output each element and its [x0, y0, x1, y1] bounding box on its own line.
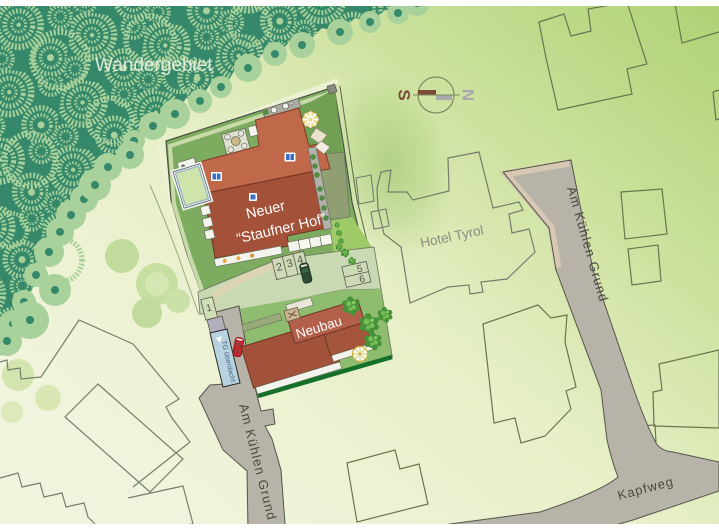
- svg-text:N: N: [459, 89, 478, 101]
- svg-text:Wandergebiet: Wandergebiet: [95, 55, 213, 76]
- svg-text:S: S: [395, 89, 414, 100]
